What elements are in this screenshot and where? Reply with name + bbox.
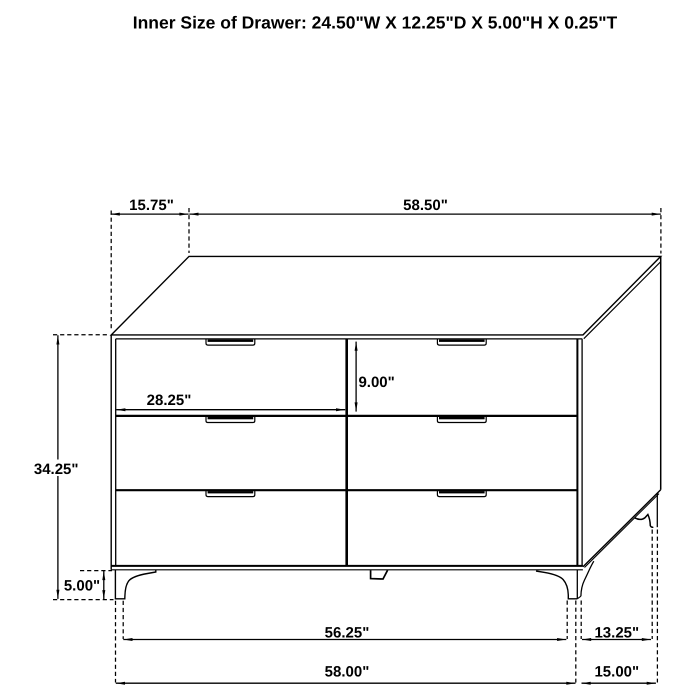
svg-text:9.00": 9.00" (358, 374, 394, 391)
svg-text:Inner Size of Drawer: 24.50"W: Inner Size of Drawer: 24.50"W X 12.25"D … (133, 13, 618, 33)
svg-text:15.75": 15.75" (129, 197, 174, 214)
svg-text:5.00": 5.00" (64, 577, 100, 594)
svg-text:58.50": 58.50" (403, 197, 448, 214)
svg-text:56.25": 56.25" (325, 624, 370, 641)
svg-text:28.25": 28.25" (147, 392, 192, 409)
svg-text:15.00": 15.00" (594, 663, 639, 680)
svg-text:13.25": 13.25" (594, 624, 639, 641)
svg-text:58.00": 58.00" (325, 663, 370, 680)
svg-text:34.25": 34.25" (34, 461, 79, 478)
